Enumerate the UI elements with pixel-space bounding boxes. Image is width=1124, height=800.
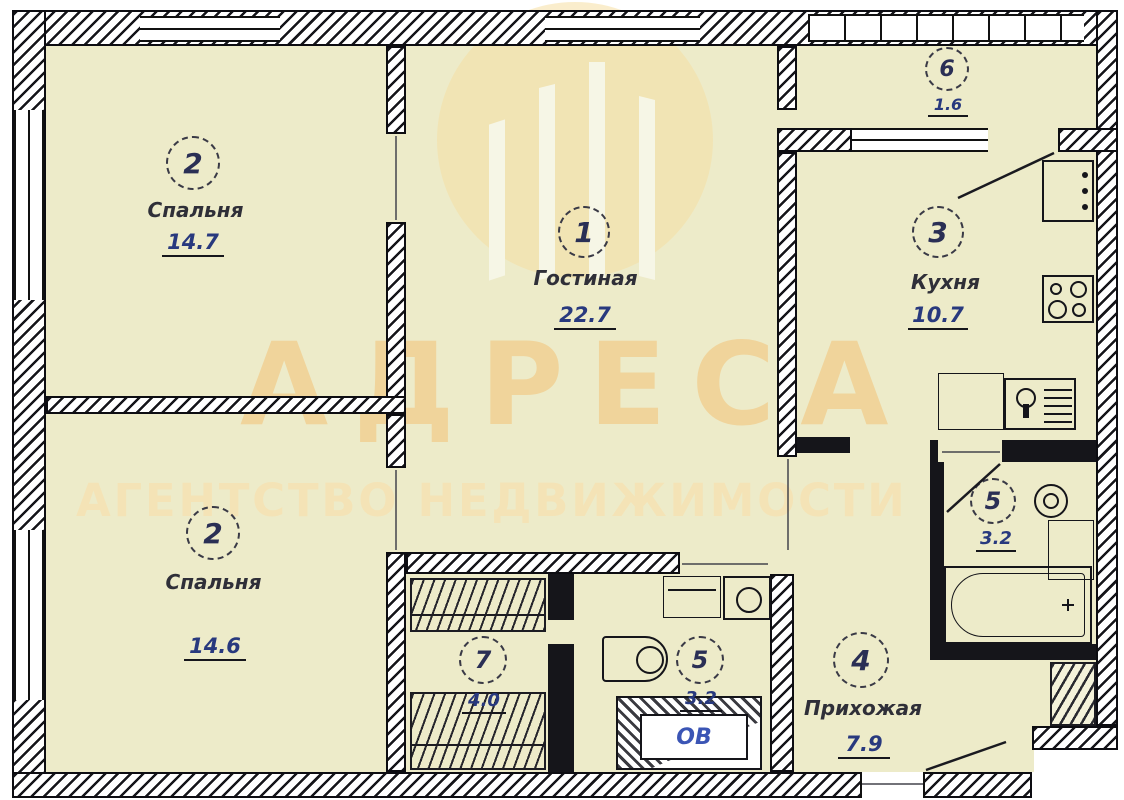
stove	[1042, 275, 1094, 323]
vent-shaft-inner: ОВ	[640, 714, 748, 760]
floor-plan: АДРЕСА АГЕНТСТВО НЕДВИЖИМОСТИ	[0, 0, 1124, 800]
fridge-dot	[1082, 204, 1088, 210]
room-name: Прихожая	[798, 696, 928, 720]
room-area: 4.0	[462, 690, 506, 714]
room-number-circle: 4	[833, 632, 889, 688]
bathtub	[944, 566, 1092, 644]
kitchen-counter	[938, 373, 1004, 430]
sink-drainboard	[1044, 385, 1072, 423]
room-area: 22.7	[554, 303, 616, 330]
logo-building-bar	[639, 96, 655, 280]
wall-partition	[770, 574, 794, 772]
fridge-dot	[1082, 172, 1088, 178]
wall-bathroom-right-bottom	[930, 644, 1096, 660]
room-number: 6	[939, 57, 954, 82]
room-name: Гостиная	[518, 266, 653, 290]
stove-burner	[1050, 283, 1062, 295]
toilet	[602, 636, 668, 682]
wall-partition	[386, 414, 406, 468]
window-bedroom-bottom-left	[14, 530, 44, 700]
wall-sink-line	[668, 589, 716, 591]
logo-building-bar	[539, 84, 555, 280]
window-bedroom-top-left	[14, 110, 44, 300]
wall-partition	[777, 152, 797, 457]
room-number-circle: 2	[166, 136, 220, 190]
room-number-circle: 3	[912, 206, 964, 258]
wall-living-bottom	[406, 552, 680, 574]
wall-balcony-divider	[1058, 128, 1118, 152]
kitchen-sink	[1004, 378, 1076, 430]
room-area: 10.7	[908, 303, 968, 330]
balcony-glazing	[808, 14, 1084, 42]
stove-burner	[1072, 303, 1086, 317]
room-area: 3.2	[680, 688, 722, 712]
wall-partition	[386, 552, 406, 772]
room-number-circle: 2	[186, 506, 240, 560]
window-living	[545, 16, 700, 42]
sink-faucet-stem	[1023, 404, 1029, 418]
wall-sink	[663, 576, 721, 618]
room-number-circle: 5	[970, 478, 1016, 524]
room-number-circle: 6	[925, 47, 969, 91]
room-number: 5	[985, 487, 1002, 515]
wall-partition	[386, 46, 406, 134]
fridge-dot	[1082, 188, 1088, 194]
washing-machine	[723, 576, 771, 620]
stove-burner	[1070, 281, 1087, 298]
room-name: Спальня	[156, 570, 271, 594]
watermark-title: АДРЕСА	[240, 318, 914, 451]
room-number-circle: 1	[558, 206, 610, 258]
fridge	[1042, 160, 1094, 222]
room-number: 1	[574, 216, 593, 249]
window-bedroom-top	[140, 16, 280, 42]
bathtub-drain	[1067, 599, 1069, 611]
stove-burner	[1048, 300, 1067, 319]
room-area: 14.7	[162, 230, 224, 257]
room-number: 5	[692, 646, 709, 674]
room-number: 2	[183, 147, 202, 180]
washing-machine-door	[736, 587, 762, 613]
wall-right	[1096, 10, 1118, 726]
wall-bathroom-right-left	[930, 462, 944, 644]
building-notch	[1034, 750, 1118, 798]
room-area: 3.2	[976, 528, 1016, 552]
wall-bathroom-middle-left	[548, 574, 574, 772]
room-number: 2	[203, 517, 222, 550]
room-number: 4	[851, 644, 870, 677]
wall-bedroom-divider	[46, 396, 406, 414]
wall-partition	[386, 222, 406, 398]
wash-basin-drain	[1043, 493, 1059, 509]
wall-balcony-divider	[777, 128, 852, 152]
wall-bathroom-right-top	[930, 440, 938, 462]
wall-kitchen-stub	[797, 437, 850, 453]
entrance-door-opening	[860, 772, 925, 798]
room-number-circle: 5	[676, 636, 724, 684]
logo-building-bar	[489, 119, 505, 280]
room-number: 7	[475, 646, 492, 674]
door-gap	[548, 620, 574, 644]
vent-shaft-label: ОВ	[676, 725, 711, 750]
room-number: 3	[928, 216, 947, 249]
window-balcony-kitchen	[852, 128, 988, 152]
wardrobe-rack	[410, 578, 546, 632]
room-name: Кухня	[898, 270, 993, 294]
room-name: Спальня	[138, 198, 253, 222]
wall-bathroom-right-top	[1002, 440, 1096, 462]
hall-closet	[1050, 662, 1096, 726]
toilet-bowl	[636, 646, 664, 674]
room-area: 14.6	[184, 634, 246, 661]
room-area: 7.9	[838, 732, 890, 759]
wall-notch	[1032, 726, 1118, 750]
wall-partition	[777, 46, 797, 110]
room-area: 1.6	[928, 95, 968, 117]
room-number-circle: 7	[459, 636, 507, 684]
